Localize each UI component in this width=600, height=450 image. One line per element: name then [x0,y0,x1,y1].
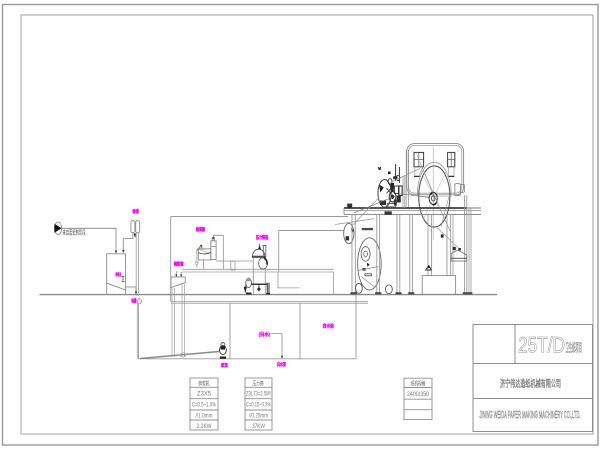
svg-text:除渣器: 除渣器 [196,226,205,233]
svg-text://0.25mm: //0.25mm [249,412,268,419]
svg-text:除渣: 除渣 [133,208,139,215]
svg-text:地漏: 地漏 [131,298,136,305]
svg-text:2.2KW: 2.2KW [197,423,213,430]
svg-text:浆泵: 浆泵 [221,362,228,369]
svg-text:压力筛选: 压力筛选 [256,234,268,241]
svg-text:C=0.5~1.0%: C=0.5~1.0% [192,402,216,409]
svg-text:调浆箱: 调浆箱 [174,260,184,267]
svg-text:JINING WEIDA PAPER MAKING MACH: JINING WEIDA PAPER MAKING MACHINERY CO.,… [480,409,581,421]
svg-text:37KW: 37KW [252,423,266,430]
svg-text:Z3X5: Z3X5 [197,391,211,398]
svg-text:2400/350: 2400/350 [407,391,429,398]
svg-text:(白水): (白水) [259,331,271,338]
svg-text://1.0mm: //1.0mm [196,412,213,419]
svg-text:白水池: 白水池 [323,323,335,330]
svg-text:25T/D: 25T/D [518,333,565,358]
svg-text:白水泵: 白水泵 [277,361,286,368]
svg-text:Z3L73=2.5M²: Z3L73=2.5M² [246,391,272,398]
svg-text:压力筛: 压力筛 [253,380,264,388]
svg-text:纸机规格: 纸机规格 [411,380,426,388]
svg-text:来自废纸制浆段: 来自废纸制浆段 [63,228,86,237]
svg-text:碎浆机: 碎浆机 [199,380,210,388]
svg-text:卫生纸项目: 卫生纸项目 [566,341,583,355]
svg-text:碎浆机: 碎浆机 [116,271,122,278]
svg-text:济宁伟达造纸机械有限公司: 济宁伟达造纸机械有限公司 [500,378,561,390]
svg-text:C=0.15~0.3%: C=0.15~0.3% [246,402,271,409]
